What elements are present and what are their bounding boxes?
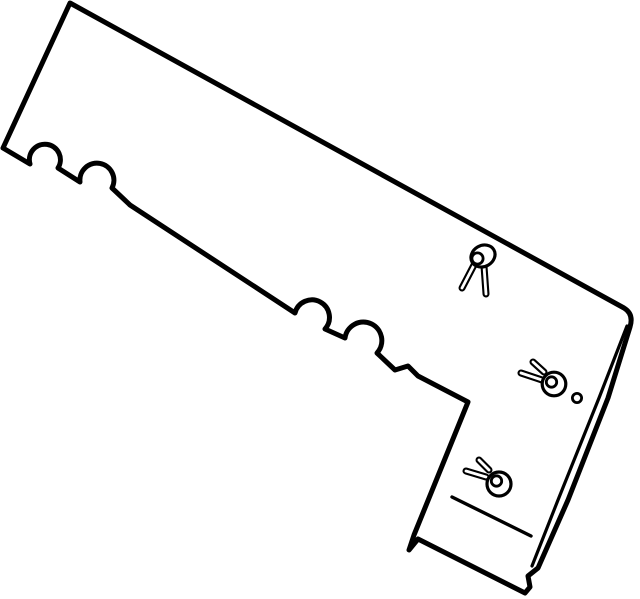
trim-panel-outline <box>3 3 631 593</box>
parts-diagram-stage <box>0 0 640 599</box>
push-pin-clip-top-stem-2-core <box>484 266 486 294</box>
push-pin-clip-top-pin <box>472 253 483 264</box>
push-pin-clip-bottom-pin <box>491 476 501 486</box>
mounting-hole <box>572 393 581 402</box>
parts-diagram-svg <box>0 0 640 599</box>
push-pin-clip-middle-pin <box>546 377 556 387</box>
